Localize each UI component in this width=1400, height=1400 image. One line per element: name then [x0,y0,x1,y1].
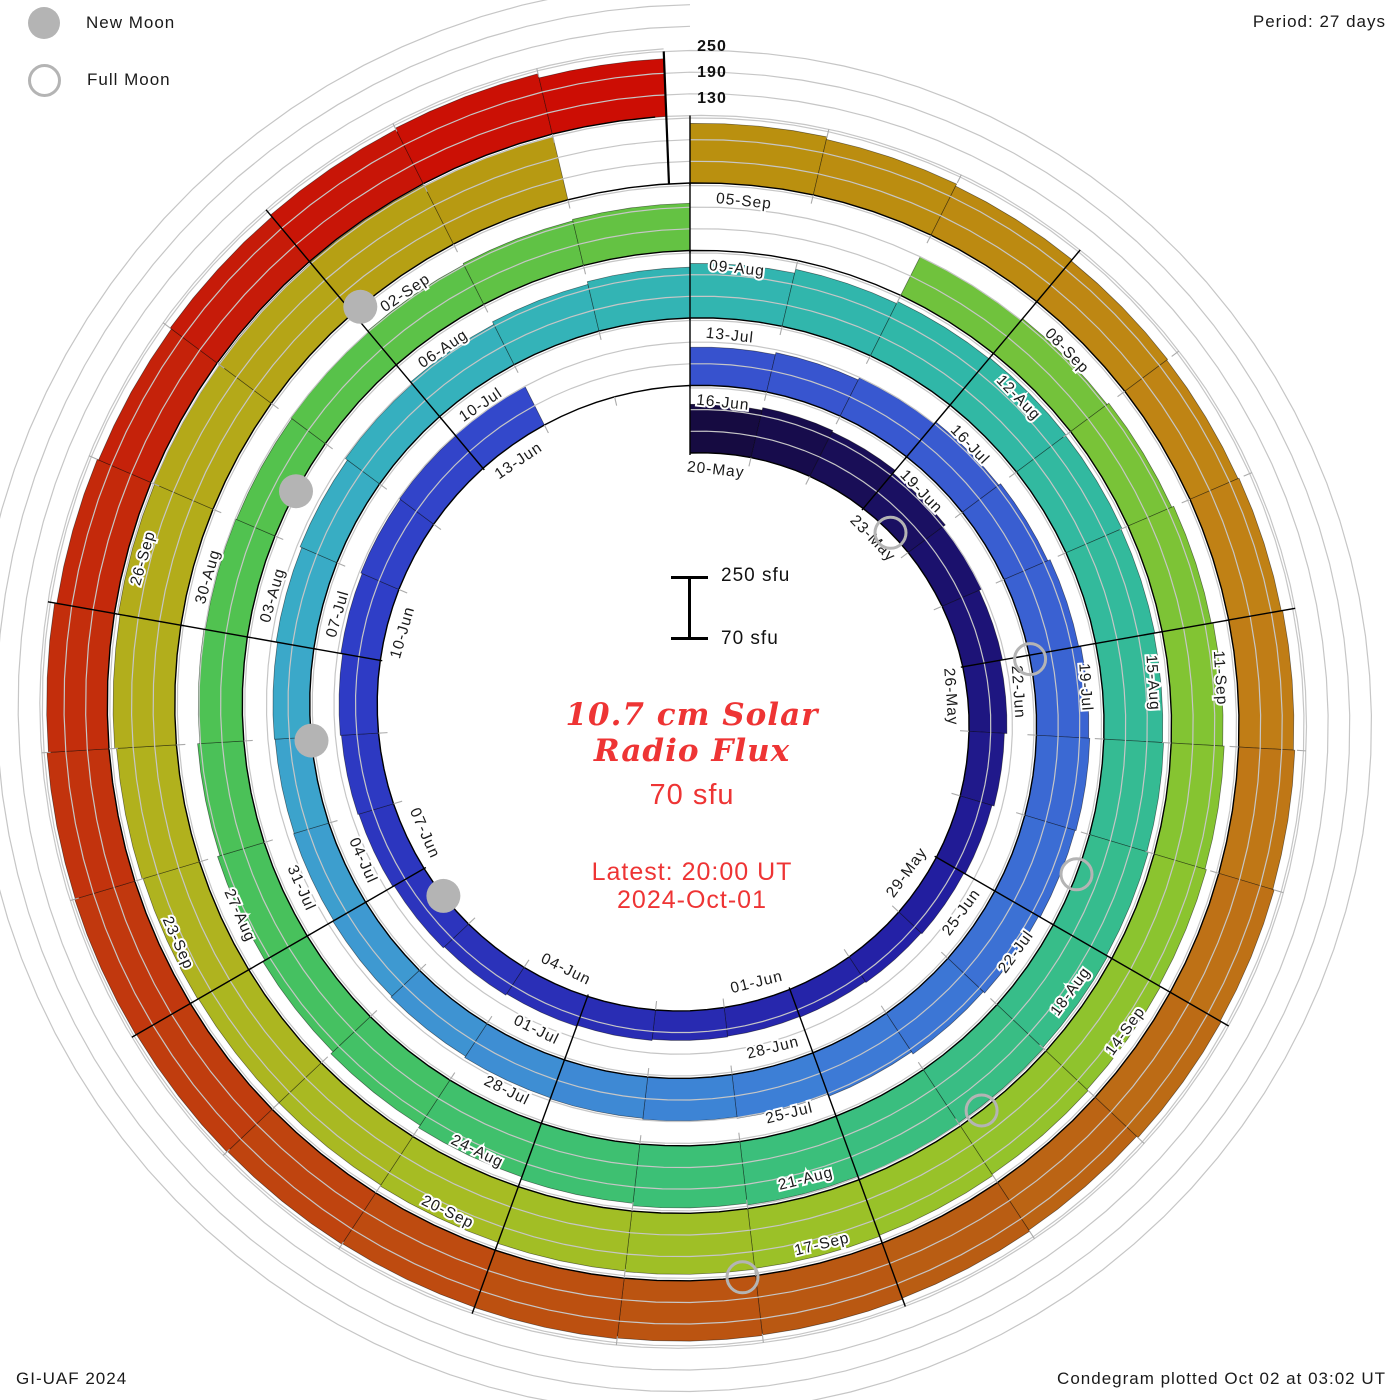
scale-bar-line [688,577,691,639]
chart-title-line2: Radio Flux [442,733,942,769]
date-label-10-Jun: 10-Jun [387,605,418,661]
radial-axis-label-190: 190 [662,60,762,86]
scale-bar-bottom-cap [671,637,708,640]
date-label-20-May: 20-May [686,458,745,481]
date-label-19-Jul: 19-Jul [1075,663,1095,712]
scale-bar-top-label: 250 sfu [721,565,790,587]
condegram-page: 20-May23-May26-May29-May01-Jun04-Jun07-J… [0,0,1400,1400]
new-moon-marker [343,290,377,324]
date-label-26-May: 26-May [940,667,961,726]
date-label-01-Jun: 01-Jun [729,968,785,997]
latest-time-label: Latest: 20:00 UT [442,858,942,887]
date-label-05-Sep: 05-Sep [715,190,772,213]
scale-bar-top-cap [671,576,708,579]
radial-axis-label-130: 130 [662,86,762,112]
plotted-timestamp-label: Condegram plotted Oct 02 at 03:02 UT [1057,1369,1386,1389]
latest-date-label: 2024-Oct-01 [442,886,942,915]
credit-label: GI-UAF 2024 [16,1369,127,1389]
new-moon-label: New Moon [86,13,175,33]
radial-axis: 250 190 130 [662,34,762,112]
new-moon-marker [295,724,329,758]
radial-axis-label-250: 250 [662,34,762,60]
current-flux-value: 70 sfu [442,779,942,812]
new-moon-icon [28,7,60,39]
period-label: Period: 27 days [1253,12,1386,32]
legend-row-full-moon: Full Moon [28,61,175,99]
full-moon-icon [28,64,61,97]
chart-title-line1: 10.7 cm Solar [442,697,942,733]
scale-bar-bottom-label: 70 sfu [721,628,779,650]
moon-legend: New Moon Full Moon [28,4,175,118]
legend-row-new-moon: New Moon [28,4,175,42]
full-moon-label: Full Moon [87,70,171,90]
date-label-13-Jul: 13-Jul [705,325,755,347]
new-moon-marker [279,474,313,508]
